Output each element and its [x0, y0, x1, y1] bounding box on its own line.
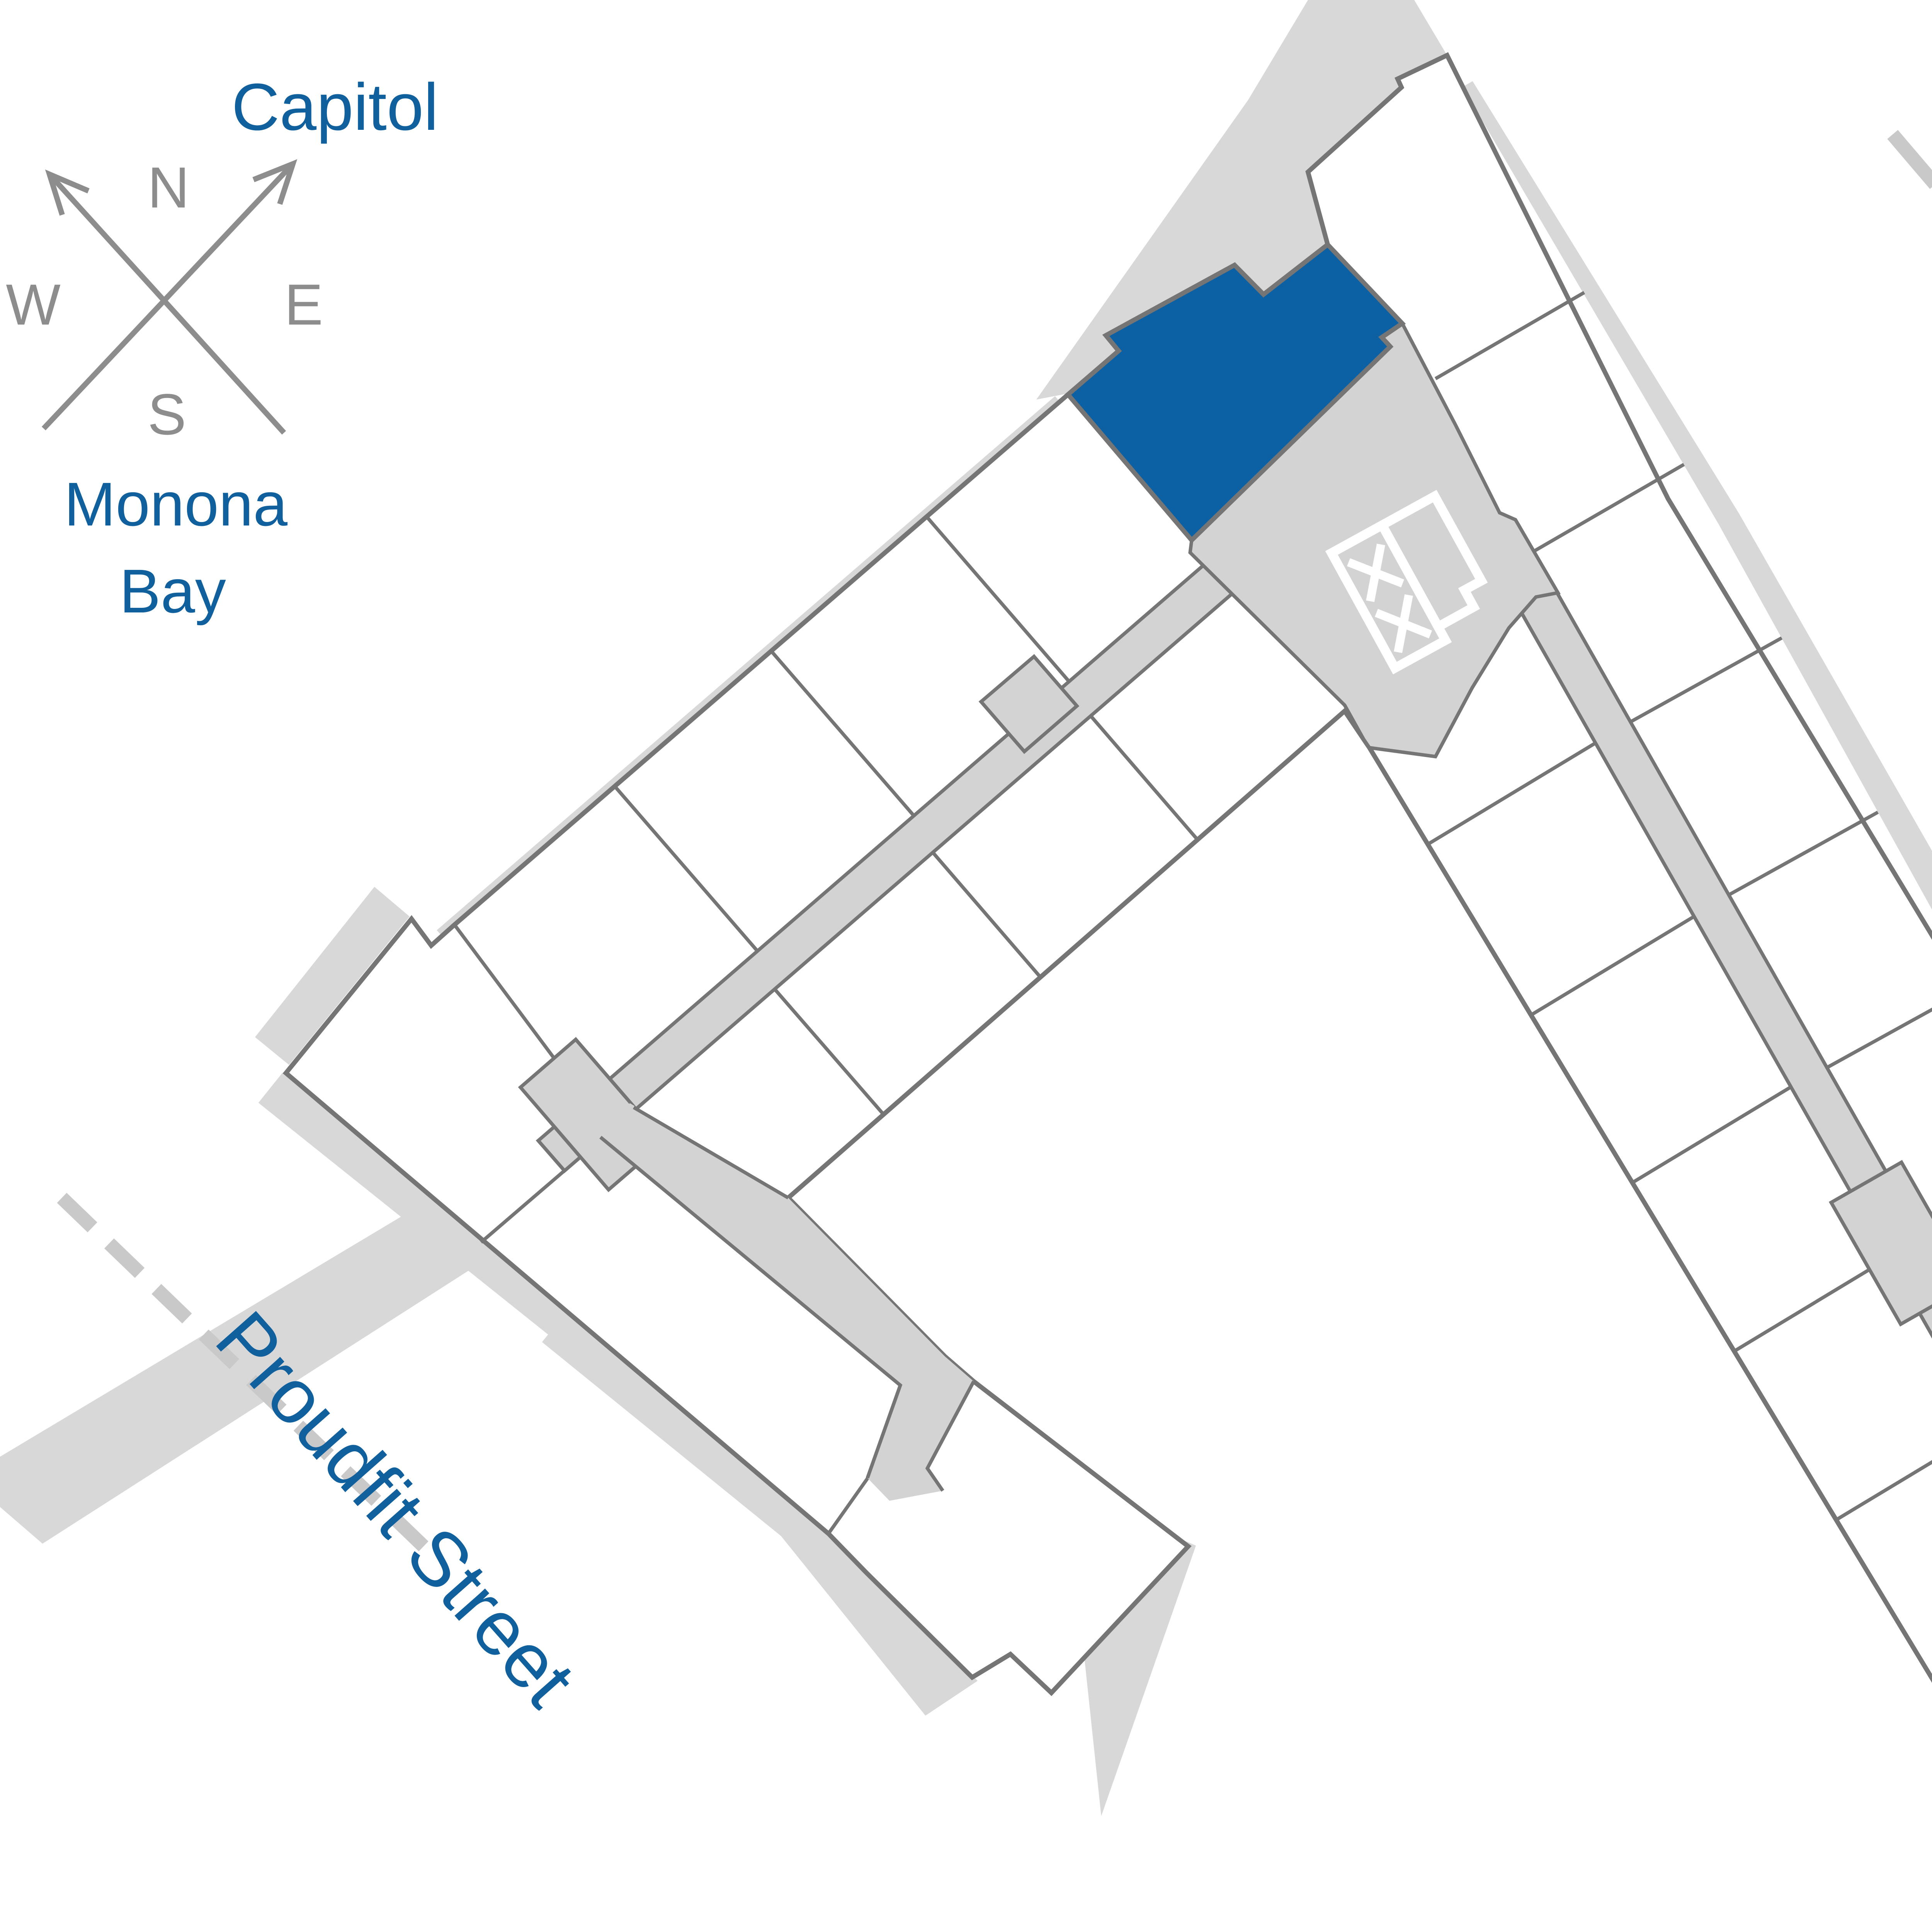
svg-text:E: E [284, 272, 323, 337]
svg-text:W: W [6, 272, 61, 337]
svg-text:Capitol: Capitol [231, 70, 438, 144]
svg-text:N: N [148, 155, 189, 220]
svg-text:Bay: Bay [119, 556, 226, 626]
svg-text:S: S [148, 382, 186, 447]
svg-text:Monona: Monona [64, 469, 287, 539]
svg-text:North Shore Drive: North Shore Drive [1900, 1918, 1932, 1932]
